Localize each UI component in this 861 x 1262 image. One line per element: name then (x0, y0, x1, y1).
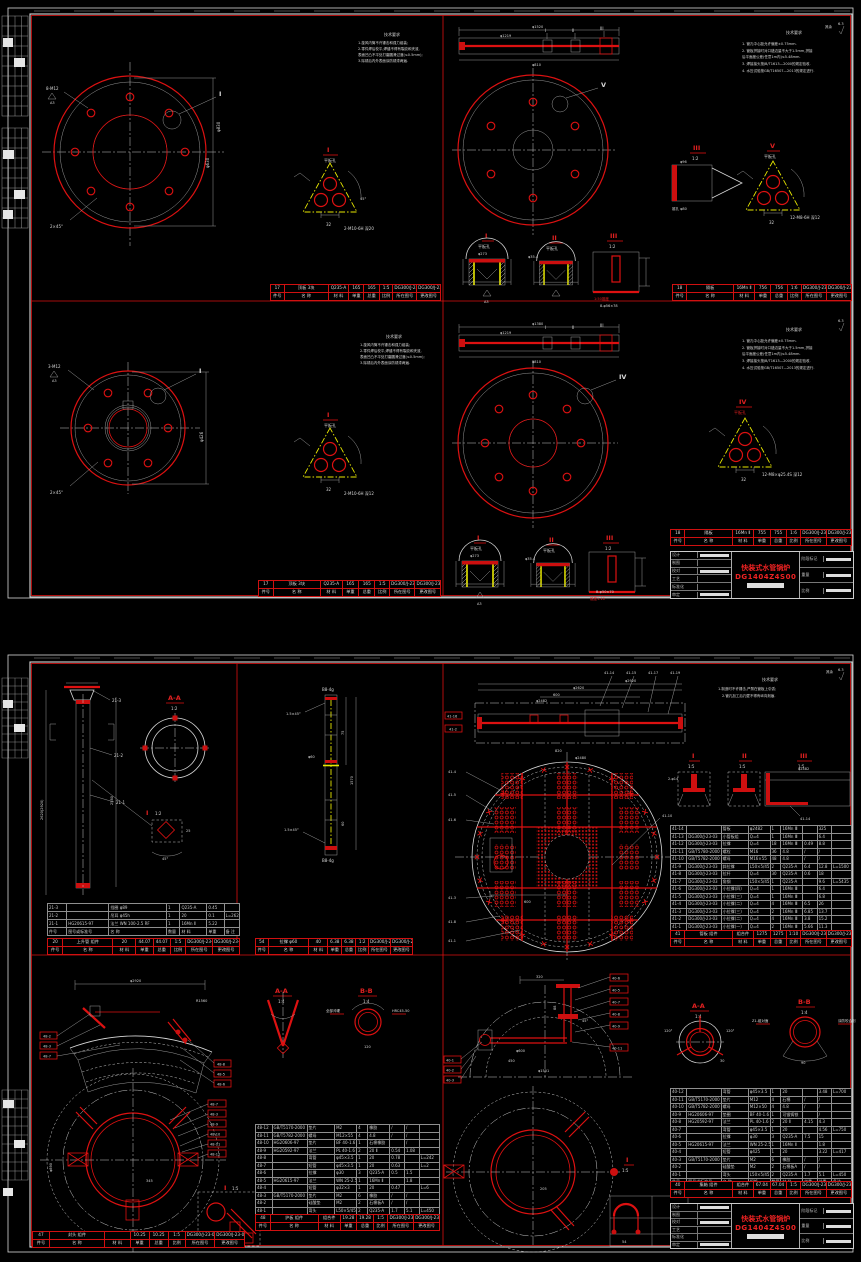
cell: 比例 (786, 538, 800, 546)
cad-drawing: φ630 φ830 8-M12 A3 2×45° I I 平板孔 32 2-M1… (0, 0, 861, 1262)
cell: 48-7 (256, 1162, 273, 1170)
section-title: A-A (168, 694, 181, 702)
cell (272, 1155, 307, 1163)
section-title: B-B (798, 998, 811, 1006)
cell: 小拉撑(四) (721, 886, 748, 894)
cell: 名 称 (109, 928, 167, 936)
dim-label: φ2480 (575, 756, 586, 760)
cell: 石棉板A (781, 1164, 803, 1172)
cell: DG300/J-23-03 (826, 530, 851, 538)
cell: 3 (357, 1170, 368, 1178)
signature-label: 审定 (671, 1242, 698, 1248)
cell (224, 920, 239, 928)
roughness-rest: 其余 (826, 669, 834, 674)
cell: 总重 (770, 1190, 786, 1198)
note-label: 2-φ14 (668, 777, 679, 781)
cell: DG300/J-23-03 (687, 878, 721, 886)
cell: 17 (271, 285, 285, 293)
cell: 总重 (771, 293, 787, 301)
cell: 拉杆 (721, 871, 748, 879)
leader-label: 2×45° (50, 490, 63, 495)
ref-label: 48-9 (210, 1123, 218, 1127)
cell: 4.8 (781, 848, 803, 856)
cell: GB/T5170-2000 (272, 1192, 307, 1200)
notes-line: 2.管孔加工后孔壁不得有纵向刻痕. (722, 693, 775, 698)
detail-scale: 1:5 (232, 1186, 239, 1191)
tech-notes-a: 技术要求 1.旋风内筒不许锤击和强力组装; 2.零件焊后校平,焊缝不得有裂纹和夹… (358, 31, 423, 63)
cell: 件号 (259, 589, 274, 597)
cell: Q=4 (748, 871, 770, 879)
cell: 总重 (770, 538, 786, 546)
cell (832, 856, 852, 864)
cell: 48-2 (256, 1200, 273, 1208)
tube-view: 2620(2920) 2580 21-3 21-2 21-1 A (40, 683, 126, 913)
cell: 件号 (256, 947, 269, 955)
dim-label: φ2482 (798, 767, 809, 771)
cell (105, 1232, 130, 1240)
cell: Q=4 (748, 886, 770, 894)
cell: 小拉撑(二) (721, 916, 748, 924)
cell: 19.28 (357, 1215, 374, 1223)
dim-label: φ2920 (625, 679, 636, 683)
signature-label: 工艺 (671, 1227, 698, 1233)
ref-label: 48-7 (43, 1055, 51, 1059)
cell: DG300/J-23-02 (801, 1182, 826, 1190)
cell: 弯管 (721, 1089, 748, 1097)
cell: / (390, 1125, 405, 1133)
section-a-a-ring: A-A 1:2 (140, 694, 210, 783)
cell: 0.6 (803, 871, 817, 879)
notes-line: 2.零件焊后校平,焊缝不得有裂纹和夹渣, (358, 46, 420, 51)
angle-label: 45° (360, 197, 366, 201)
part-strip-s1q2: 18隔板16Mn Ⅱ7567561:6DG300/J-23-01DG300/J-… (672, 284, 852, 301)
cell: 5.1 (817, 1171, 831, 1179)
cell: 3.22 (817, 1149, 831, 1157)
roughness-check-icon (839, 672, 844, 680)
notes-line: 3.除锈后内外表面涂防锈漆两遍. (360, 360, 410, 365)
cell: 小拉撑(二) (721, 901, 748, 909)
cell: 16Mn Ⅲ (781, 826, 803, 834)
cell: 吊耳 φ45h (109, 912, 167, 920)
cell (803, 878, 817, 886)
title-block-signatures: 设计 制图 校对 工艺 标准化 审定 (671, 1204, 732, 1248)
cell: 更改图号 (826, 1190, 851, 1198)
roughness-rest: 其余 (825, 24, 833, 29)
signature-label: 工艺 (671, 576, 698, 582)
cell: 48 (770, 856, 781, 864)
cell: 18 (817, 871, 831, 879)
cell: 2 (770, 1164, 781, 1172)
cell: GB/T5782-2000 (272, 1132, 307, 1140)
cell: 1:5 (786, 1182, 800, 1190)
cell: / (817, 856, 831, 864)
signature-label: 设计 (671, 552, 698, 558)
cell: 拉撑 (721, 1134, 748, 1142)
cell: Q=4 (748, 841, 770, 849)
plate-view-q1: φ630 φ830 8-M12 A3 2×45° I (42, 62, 224, 246)
cell: 材 料 (732, 538, 754, 546)
cell: 总重 (153, 947, 170, 955)
cell: / (803, 1096, 817, 1104)
cell: 40-6 (671, 1134, 687, 1142)
detail-scale: 1:2 (605, 546, 612, 551)
ref-label: 40-2 (446, 1069, 454, 1073)
cell: 材 料 (733, 293, 754, 301)
cell: / (817, 1096, 831, 1104)
cell: 比例 (787, 293, 801, 301)
cell: Q235-A (781, 871, 803, 879)
cell: 1.08 (405, 1147, 420, 1155)
title-block-product: 快装式水管锅炉 DG1404Z4S00 (732, 552, 800, 598)
cell: 1 (357, 1155, 368, 1163)
cell: 件号 (271, 293, 285, 301)
cell: 16Mn Ⅲ (781, 901, 803, 909)
cell (832, 1141, 852, 1149)
ref-label: 48-3 (43, 1045, 51, 1049)
angle-label: 120° (726, 1029, 735, 1033)
cell: L50×5/45 (748, 863, 770, 871)
cell: 16Mn Ⅲ (781, 841, 803, 849)
cell: Q=4 (748, 901, 770, 909)
cell: 隔板 (685, 530, 732, 538)
cell: 材 料 (105, 1240, 130, 1248)
cell: 1:5 (379, 285, 393, 293)
cell: 48-12 (256, 1125, 273, 1133)
cell: 更改图号 (826, 538, 851, 546)
cell: M12×50 (748, 1104, 770, 1112)
cell: 1 (770, 886, 781, 894)
binding-edge-table-s1 (2, 16, 28, 228)
cell: 比例 (786, 939, 800, 947)
cell (832, 1164, 852, 1172)
cell: / (390, 1200, 405, 1208)
detail-q2-iii: III 1:2 φ96 锥孔 φ80 (672, 144, 742, 211)
title-block-sheet1: 设计 制图 校对 工艺 标准化 审定 快装式水管锅炉 DG1404Z4S00 阶… (670, 551, 854, 599)
cell: 1:6 (786, 530, 800, 538)
cell (405, 1162, 420, 1170)
cell (803, 1149, 817, 1157)
ref-label: 41-3 (448, 896, 456, 900)
cell: 组合件 (732, 1182, 754, 1190)
cell: 48-6 (256, 1170, 273, 1178)
ref-label: 41-8 (448, 920, 456, 924)
cell: 0.54 (390, 1147, 405, 1155)
cell (272, 1162, 307, 1170)
cell: BF 40-1.6 (748, 1111, 770, 1119)
cell: L=750 (832, 1126, 852, 1134)
cell: 件号 (671, 538, 685, 546)
roughness-value: 6.3 (838, 22, 844, 26)
cell: 拉撑 (721, 841, 748, 849)
angle-label: 45° (582, 1019, 588, 1023)
ref-label: 41-16 (447, 715, 457, 719)
cell: 41-12 (671, 841, 687, 849)
cell: GB/T5780-2000 (687, 848, 721, 856)
cell: 16Mn Ⅲ (781, 833, 803, 841)
cell (832, 1096, 852, 1104)
cell: 755 (754, 530, 770, 538)
note-label: HRC45-50 (392, 1009, 410, 1013)
meta-label: 比例 (800, 588, 824, 594)
cell: 3.48 (817, 1089, 831, 1097)
cell: 0.5 (390, 1170, 405, 1178)
dim-label: R1560 (196, 999, 207, 1003)
detail-scale: 1:2 (155, 811, 162, 816)
cell: L=2620 (224, 912, 239, 920)
cell: φ425 (748, 1149, 770, 1157)
cell: 9.6 (817, 878, 831, 886)
ref-label: 40-6 (612, 977, 620, 981)
cell: 16Mn Ⅲ (781, 886, 803, 894)
dim-label: 32 (741, 477, 747, 482)
cell: 41-3 (671, 908, 687, 916)
ref-label: 40-8 (612, 1013, 620, 1017)
title-block-meta: 阶段标记 重量 比例 (800, 552, 853, 598)
cell: 6.38 (328, 939, 342, 947)
cell: 材 料 (328, 293, 348, 301)
signature-label: 校对 (671, 568, 698, 574)
cell: 4.3 (817, 1119, 831, 1127)
part-strip-s1q1: 17顶板 3块Q235-A1651651:5DG300/J-23-01DG300… (270, 284, 441, 301)
cell: 21-1 (48, 920, 67, 928)
cell: HG20606-97 (272, 1140, 307, 1148)
detail-title: I (146, 809, 148, 817)
ref-label: II (572, 325, 574, 330)
cell: 48-10 (256, 1140, 273, 1148)
cell: HG20606-97 (687, 1111, 721, 1119)
cell: 40 (671, 1182, 685, 1190)
cell: φ30 (335, 1170, 357, 1178)
cell: 1 (770, 1126, 781, 1134)
dim-label: φ2482 (536, 699, 547, 703)
view-ref: V (601, 81, 606, 89)
cell: 40-11 (671, 1096, 687, 1104)
notes-title: 技术要求 (762, 676, 778, 682)
cell: 1 (357, 1177, 368, 1185)
cell: 单重 (349, 293, 364, 301)
cell: DG300/J-23-02 (417, 285, 441, 293)
notes-line: 表面凹凸不平处打磨圆滑过渡(≤0.5mm); (360, 354, 425, 359)
cell: 40-9 (671, 1111, 687, 1119)
tech-notes-c: 技术要求 1.旋风内筒不许锤击和强力组装; 2.零件焊后校平,焊缝不得有裂纹和夹… (360, 333, 425, 365)
detail-title: I (327, 146, 329, 154)
cell (419, 1147, 439, 1155)
cell: M12 (748, 1096, 770, 1104)
plate-view-q3: φ426 3-M12 A3 2×45° I (48, 362, 209, 495)
cell: 总重 (770, 939, 786, 947)
cell: 法兰 (307, 1177, 335, 1185)
cell: 名 称 (284, 293, 328, 301)
parts-table-s2q1: 21-3挡圈 φ891Q235-A0.45 21-2吊耳 φ45h1200.1L… (47, 903, 240, 936)
cell: φ45×3.5 (748, 1126, 770, 1134)
cell: 6 (357, 1192, 368, 1200)
cell: L50×5/45 (748, 1171, 770, 1179)
detail-title: IV (739, 398, 746, 406)
cell: 总重 (149, 1240, 168, 1248)
part-strip-s1q4: 18隔板16Mn Ⅱ7557551:6DG300/J-23-01DG300/J-… (670, 529, 852, 546)
cell: 组合件 (318, 1215, 340, 1223)
ref-label: 41-6 (448, 818, 456, 822)
cell: 垫片 (307, 1140, 335, 1148)
roughness-value: 6.3 (838, 668, 844, 672)
detail-sub: 平板孔 (478, 243, 490, 249)
detail-s2-q1: I 1:2 25 45° (92, 780, 190, 861)
detail-ref: I (626, 1156, 628, 1164)
cell (687, 826, 721, 834)
cell (832, 1156, 852, 1164)
cell: 40-12 (671, 1089, 687, 1097)
cell: 20 (48, 939, 63, 947)
section-title: B-B (360, 987, 373, 995)
cell: 名 称 (63, 947, 113, 955)
meta-label: 重量 (800, 572, 824, 578)
meta-label: 阶段标记 (800, 1208, 824, 1214)
detail-q4-iv: IV 平板孔 32 12-M8×φ25.4S 深12 (709, 398, 803, 482)
cell: 47 (33, 1232, 50, 1240)
cell: / (817, 1104, 831, 1112)
parts-table-s2q4: 48-12GB/T5170-2000垫片M24橡胶// 48-11GB/T578… (255, 1124, 440, 1223)
cell: 67.04 (754, 1182, 770, 1190)
cell: 1 (167, 904, 180, 912)
ref-label: 40-7 (612, 1001, 620, 1005)
cell: Q235-A (368, 1170, 390, 1178)
product-name: 快装式水管锅炉 (741, 1214, 790, 1224)
section-scale: 1:4 (801, 1010, 808, 1015)
cell: 螺母 (721, 856, 748, 864)
cell: 比例 (373, 1223, 388, 1231)
cell: PL 40-1.6 RF (335, 1147, 357, 1155)
cell: 2 (770, 908, 781, 916)
cell (224, 904, 239, 912)
cell: 41-8 (671, 871, 687, 879)
detail-title: II (742, 752, 747, 760)
cell: / (803, 856, 817, 864)
cell: 护板 组件 (270, 1215, 318, 1223)
signature-label: 校对 (671, 1219, 698, 1225)
cell: 螺母 (307, 1132, 335, 1140)
cell (832, 908, 852, 916)
cell: 0.45 (207, 904, 224, 912)
title-block-product: 快装式水管锅炉 DG1404Z4S00 (732, 1204, 800, 1248)
cell: 材 料 (113, 947, 136, 955)
cell (419, 1170, 439, 1178)
cell (832, 1119, 852, 1127)
parts-table-s2q5: 40-12弯管φ45×3.51203.48L=700 40-11GB/T5170… (670, 1088, 852, 1187)
cell: 名 称 (685, 939, 732, 947)
cell: 总重 (342, 947, 356, 955)
cell: 165 (349, 285, 364, 293)
cell: DG300/J-23-03 (687, 886, 721, 894)
cell: 角钢 (721, 878, 748, 886)
cell: 4 (357, 1125, 368, 1133)
cell (832, 916, 852, 924)
cell: 比例 (356, 947, 369, 955)
notes-line: 4. 水压试验按GB/T16507—2013的规定进行. (742, 365, 815, 370)
cad-canvas: φ630 φ830 8-M12 A3 2×45° I I 平板孔 32 2-M1… (0, 0, 861, 1262)
cell: 40-8 (671, 1119, 687, 1127)
dim-label: φ1520 (532, 25, 543, 29)
parts-table-s2q3: 41-14管板φ2482116Mn Ⅲ325 41-13DG300/J-23-0… (670, 825, 852, 939)
note-label: 全部淬硬 (326, 1008, 340, 1013)
cell (803, 833, 817, 841)
ref-label: 48-5 (217, 1073, 225, 1077)
cell: 20 (781, 1149, 803, 1157)
cell: DG300/J-23-03 (687, 893, 721, 901)
cell: 弯管 (307, 1155, 335, 1163)
roughness-value: 6.3 (838, 319, 844, 323)
ref-label: 48-2 (43, 1035, 51, 1039)
cell: 材 料 (320, 589, 342, 597)
cell: 所在图号 (186, 947, 213, 955)
dim-label: 1570 (350, 776, 354, 785)
ref-label: II (572, 28, 574, 33)
cell (803, 1089, 817, 1097)
cell (832, 871, 852, 879)
cell: 2 (770, 863, 781, 871)
view-ref: I (199, 367, 201, 375)
detail-scale: 1:5 (622, 1168, 629, 1173)
cell: DG300/J-23-02 (415, 581, 441, 589)
detail-title: I (477, 534, 479, 542)
ref-label: 48-12 (210, 1153, 220, 1157)
note-label: 2-M10-6H 深12 (344, 490, 374, 496)
cell: 20 (781, 1126, 803, 1134)
cell: 弯头 (721, 1171, 748, 1179)
cell: 41-4 (671, 901, 687, 909)
plate-view-q4: IV (452, 360, 626, 528)
cell: 总重 (359, 589, 375, 597)
detail-scale: 1:2 (609, 244, 616, 249)
fan-segment-view: φ2920 R1560 48-2 48-3 48-7 48-8 48-5 48-… (40, 979, 231, 1093)
cell: 20 (368, 1185, 390, 1193)
cell: 165 (359, 581, 375, 589)
view-ref: IV (619, 373, 626, 381)
stamp-bar (747, 583, 784, 588)
cell: 石棉橡胶 (368, 1140, 390, 1148)
ref-label: 41-19 (670, 671, 680, 675)
flag-label: A3 (477, 602, 482, 606)
cell: 4 (770, 901, 781, 909)
cell: 1:5 (373, 1215, 388, 1223)
cell: 19.28 (340, 1215, 357, 1223)
cell: 16Mn Ⅱ (733, 285, 754, 293)
cell: φ45×3.5 (748, 1089, 770, 1097)
cell: 件号 (256, 1223, 271, 1231)
detail-sub: 平板孔 (764, 153, 776, 159)
dim-label: φ1219 (500, 331, 511, 335)
dim-label: φ60 (308, 755, 315, 759)
cell (419, 1132, 439, 1140)
note-label: 锥孔 φ80 (672, 206, 687, 211)
cell: DG300/J-23-03 (687, 916, 721, 924)
cell: 法兰 (307, 1147, 335, 1155)
leader-label: 21-1 (116, 800, 126, 805)
cell: 单重 (754, 1190, 770, 1198)
cell: 比例 (168, 1240, 185, 1248)
cell: 单重 (136, 947, 153, 955)
cell: 325 (817, 826, 831, 834)
ref-label: 40-9 (612, 1025, 620, 1029)
cell: 40-7 (671, 1126, 687, 1134)
ref-label: 40-11 (612, 1047, 622, 1051)
dim-label: 120 (364, 1045, 371, 1049)
cell: 1.8 (405, 1177, 420, 1185)
cell: / (803, 1104, 817, 1112)
cell: 1.8 (817, 1141, 831, 1149)
cell: 上升管 组件 (63, 939, 113, 947)
cell: 20 (781, 1089, 803, 1097)
cell: 比例 (170, 947, 185, 955)
